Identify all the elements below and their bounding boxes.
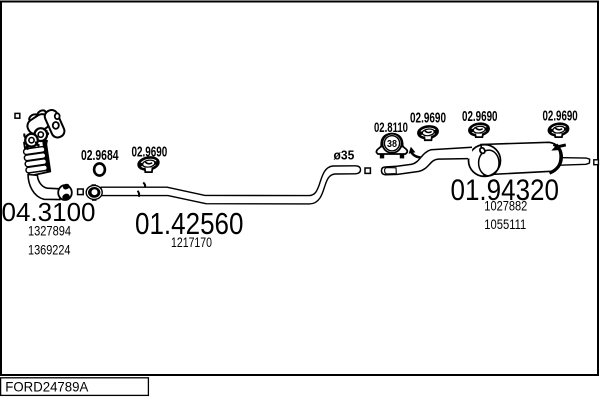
svg-text:02.9690: 02.9690: [132, 143, 168, 160]
svg-text:38: 38: [387, 138, 397, 150]
svg-text:1369224: 1369224: [28, 242, 71, 258]
svg-text:1327894: 1327894: [28, 222, 71, 238]
svg-text:02.8110: 02.8110: [374, 119, 408, 135]
svg-text:FORD24789A: FORD24789A: [5, 380, 89, 395]
svg-text:1055111: 1055111: [484, 217, 526, 232]
svg-text:02.9690: 02.9690: [543, 108, 578, 125]
svg-text:02.9690: 02.9690: [462, 108, 498, 125]
svg-text:1217170: 1217170: [171, 234, 212, 250]
svg-text:1027882: 1027882: [484, 198, 527, 213]
svg-text:02.9690: 02.9690: [410, 109, 446, 126]
svg-text:02.9684: 02.9684: [81, 147, 119, 164]
svg-text:ø35: ø35: [334, 148, 355, 163]
